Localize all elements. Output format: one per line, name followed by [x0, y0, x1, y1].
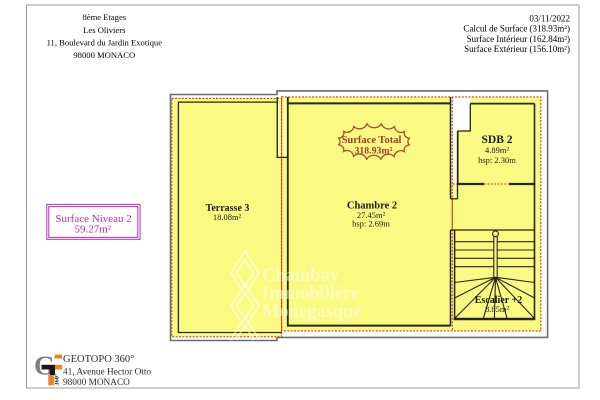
svg-text:360°: 360° — [53, 373, 60, 386]
svg-text:Monegasque: Monegasque — [262, 302, 362, 322]
svg-text:11, Boulevard du Jardin Exotiq: 11, Boulevard du Jardin Exotique — [47, 37, 163, 47]
svg-text:8.85m²: 8.85m² — [485, 304, 509, 314]
svg-text:59.27m²: 59.27m² — [74, 224, 111, 236]
svg-text:Les Oliviers: Les Oliviers — [83, 25, 126, 35]
svg-text:03/11/2022: 03/11/2022 — [529, 13, 570, 23]
svg-text:98000 MONACO: 98000 MONACO — [73, 50, 135, 60]
svg-text:Chambay: Chambay — [262, 266, 340, 286]
svg-text:4.89m²: 4.89m² — [485, 145, 509, 155]
svg-text:GEOTOPO 360°: GEOTOPO 360° — [63, 354, 134, 365]
svg-text:98000 MONACO: 98000 MONACO — [63, 378, 130, 388]
svg-text:Surface Intérieur (162.84m²): Surface Intérieur (162.84m²) — [467, 34, 570, 44]
svg-text:Surface Extérieur (156.10m²): Surface Extérieur (156.10m²) — [464, 44, 570, 54]
svg-text:318.93m²: 318.93m² — [354, 146, 392, 157]
svg-text:Surface Total: Surface Total — [342, 135, 402, 146]
svg-text:18.08m²: 18.08m² — [213, 212, 242, 222]
svg-text:41, Avenue Hector Otto: 41, Avenue Hector Otto — [63, 368, 151, 378]
svg-text:hsp: 2.30m: hsp: 2.30m — [478, 155, 516, 165]
svg-text:Immobilière: Immobilière — [262, 284, 359, 304]
svg-text:Calcul de Surface (318.93m²): Calcul de Surface (318.93m²) — [463, 24, 570, 34]
svg-text:hsp: 2.69m: hsp: 2.69m — [352, 219, 390, 229]
svg-text:8ème Etages: 8ème Etages — [82, 12, 126, 22]
